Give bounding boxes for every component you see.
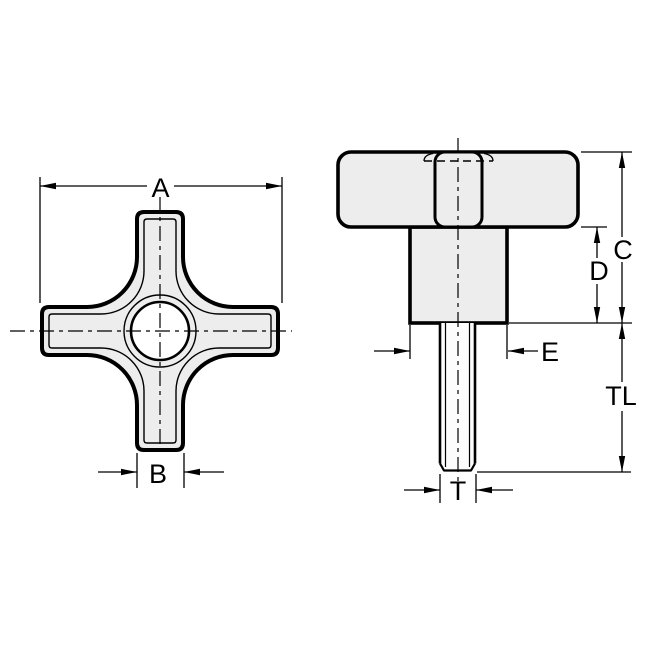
- dim-b-arrow-left: [121, 469, 137, 475]
- dim-e-arrow-right: [508, 348, 524, 354]
- dim-tl-arrow-up: [619, 323, 625, 339]
- cross-knob-drawing: A B C: [0, 0, 670, 670]
- dim-b-arrow-right: [184, 469, 200, 475]
- front-view-cross-knob: [10, 197, 292, 452]
- dim-c-arrow-down: [619, 307, 625, 323]
- dim-d-arrow-up: [594, 227, 600, 243]
- dim-label-e: E: [541, 337, 559, 367]
- side-view-knob: [338, 138, 578, 481]
- dim-a-arrow-right: [266, 183, 282, 189]
- dim-d-arrow-down: [594, 307, 600, 323]
- dim-c-arrow-up: [619, 152, 625, 168]
- dim-a-arrow-left: [40, 183, 56, 189]
- technical-drawing-page: A B C: [0, 0, 670, 670]
- dim-e-arrow-left: [394, 348, 410, 354]
- dim-t-arrow-right: [476, 487, 492, 493]
- dim-label-tl: TL: [605, 381, 637, 411]
- dim-label-a: A: [151, 173, 169, 203]
- dim-label-d: D: [589, 256, 609, 286]
- dim-label-c: C: [613, 235, 633, 265]
- dim-tl-arrow-down: [619, 456, 625, 472]
- dim-t-arrow-left: [424, 487, 440, 493]
- dim-label-b: B: [149, 459, 167, 489]
- dim-label-t: T: [450, 476, 467, 506]
